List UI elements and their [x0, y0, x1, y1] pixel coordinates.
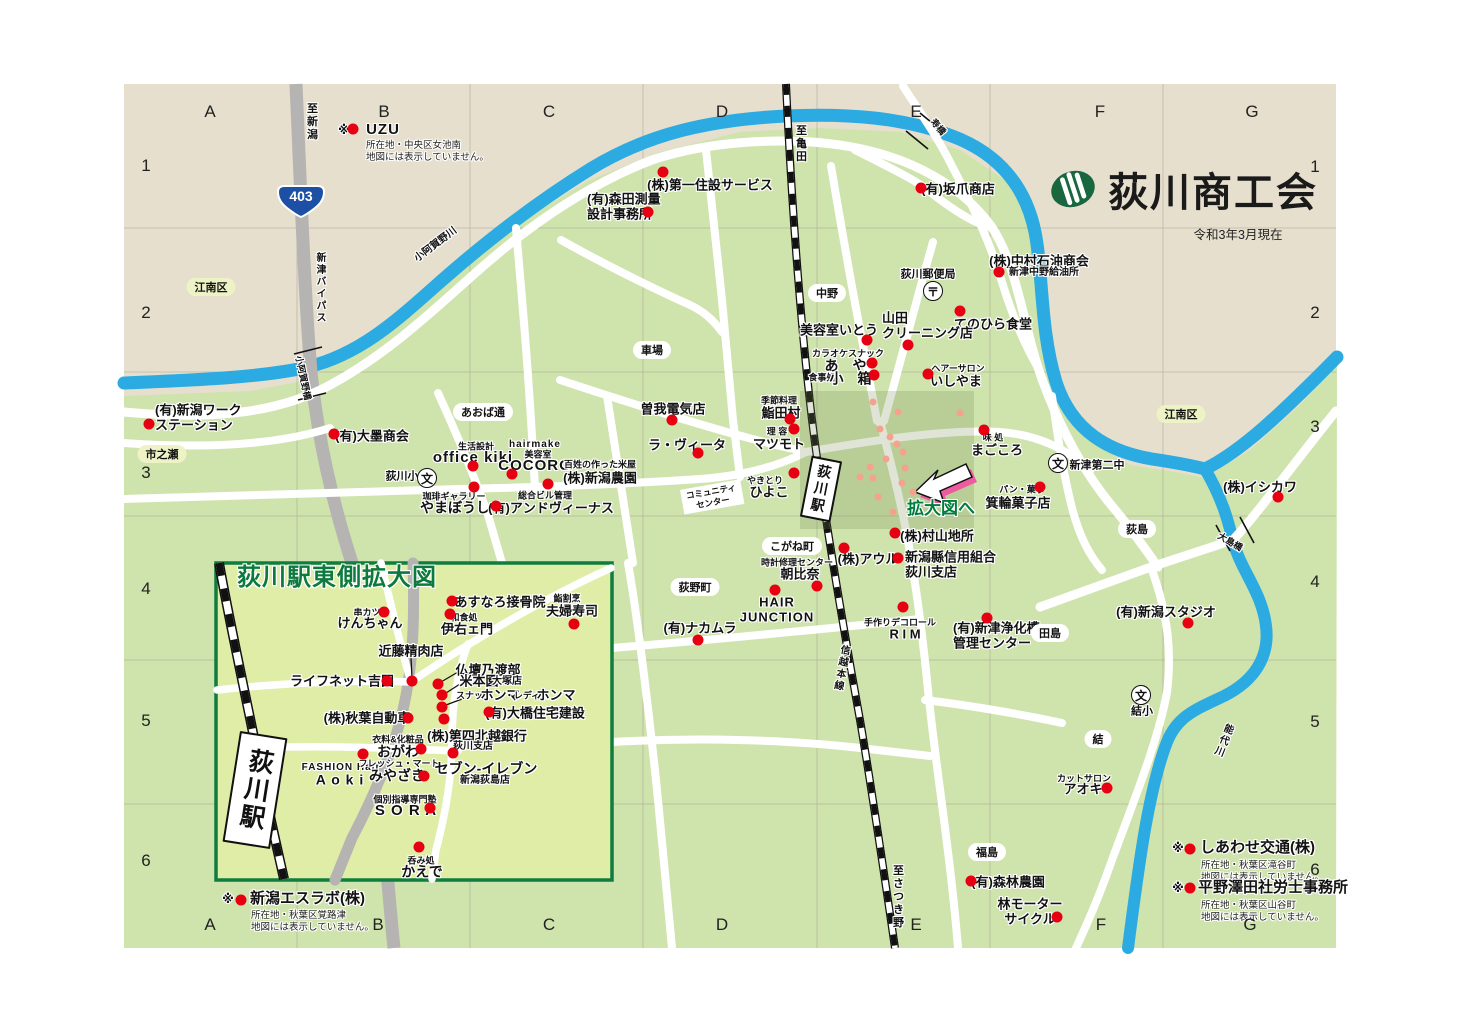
- map-label: (有)新津浄化槽 管理センター: [953, 621, 1040, 652]
- poi-dot-small: [890, 509, 897, 516]
- poi-dot: [982, 613, 993, 624]
- poi-dot: [484, 707, 495, 718]
- poi-dot: [236, 895, 247, 906]
- map-label: かえで: [401, 864, 443, 881]
- map-label: (有)アンドヴィーナス: [488, 500, 614, 515]
- map-label: マツモト: [753, 436, 805, 451]
- poi-dot: [469, 482, 480, 493]
- map-label: (有)森林農園: [971, 874, 1045, 889]
- poi-dot: [439, 714, 450, 725]
- grid-letter: B: [372, 915, 383, 935]
- poi-dot: [447, 596, 458, 607]
- grid-letter: F: [1096, 915, 1106, 935]
- place-bubble: 車場: [633, 341, 671, 359]
- poi-dot: [507, 469, 518, 480]
- map-label: 寿橋: [928, 117, 948, 138]
- poi-dot-small: [895, 409, 902, 416]
- poi-dot: [348, 124, 359, 135]
- poi-dot: [1052, 912, 1063, 923]
- map-label: 平野澤田社労士事務所: [1198, 879, 1348, 897]
- post-office-icon: 〒: [923, 281, 943, 301]
- poi-dot-small: [887, 434, 894, 441]
- poi-dot: [812, 581, 823, 592]
- map-date: 令和3年3月現在: [1048, 224, 1318, 243]
- grid-number: 1: [141, 156, 150, 176]
- poi-dot: [358, 749, 369, 760]
- map-label: 荻川支店: [453, 741, 493, 753]
- place-bubble: 荻島: [1118, 520, 1156, 538]
- poi-dot: [491, 501, 502, 512]
- map-label: (有)新潟ワーク ステーション: [155, 403, 242, 434]
- map-label: しあわせ交通(株): [1200, 839, 1315, 857]
- school-icon: 文: [1131, 685, 1151, 705]
- poi-dot: [994, 267, 1005, 278]
- map-label: まごころ: [971, 442, 1023, 457]
- poi-dot: [433, 679, 444, 690]
- map-label: ライフネット吉田: [290, 673, 394, 688]
- station-sign: 荻川駅: [800, 456, 842, 523]
- poi-dot-small: [900, 449, 907, 456]
- poi-dot: [1185, 883, 1196, 894]
- map-label: (株)イシカワ: [1223, 479, 1297, 494]
- map-label: A o k i: [316, 772, 365, 789]
- map-label: 至亀田: [795, 125, 806, 164]
- enlarge-arrow-label: 拡大図へ: [907, 499, 975, 519]
- grid-letter: A: [204, 102, 215, 122]
- map-label: (有)大橋住宅建設: [485, 705, 585, 720]
- label-uzu: UZU: [366, 121, 400, 139]
- road-to-niigata: 至新潟: [306, 103, 317, 142]
- poi-dot: [543, 479, 554, 490]
- poi-dot: [867, 358, 878, 369]
- noushiro-river: 能代川: [1211, 721, 1234, 758]
- poi-dot-small: [957, 410, 964, 417]
- map-label: ※: [1172, 881, 1184, 895]
- poi-dot: [923, 369, 934, 380]
- map-label: ラ・ヴィータ: [648, 437, 726, 452]
- map-label: (有)坂爪商店: [921, 181, 995, 196]
- poi-dot: [379, 607, 390, 618]
- poi-dot-small: [875, 494, 882, 501]
- grid-number: 2: [1310, 303, 1319, 323]
- chamber-logo-icon: [1048, 166, 1098, 212]
- map-label: ホンマ: [536, 687, 575, 702]
- map-label: 所在地・秋葉区山谷町 地図には表示していません。: [1201, 900, 1324, 925]
- place-bubble: 田島: [1031, 624, 1069, 642]
- map-label: アオキ: [1063, 781, 1102, 796]
- map-label: (株)秋葉自動車: [324, 710, 411, 725]
- map-label: 小阿賀野橋: [293, 355, 313, 401]
- map-label: 新潟エスラボ(株): [250, 890, 365, 908]
- community-center-box: コミュニティ センター: [680, 479, 744, 514]
- map-label: (株)アウル: [838, 551, 899, 566]
- map-label: やまぼうし: [420, 500, 490, 517]
- poi-dot: [1035, 482, 1046, 493]
- poi-dot: [1102, 783, 1113, 794]
- poi-dot: [903, 340, 914, 351]
- poi-dot-small: [877, 426, 884, 433]
- map-label: 荻川小: [386, 471, 419, 484]
- poi-dot: [569, 619, 580, 630]
- grid-number: 6: [141, 851, 150, 871]
- poi-dot: [437, 690, 448, 701]
- poi-dot: [658, 167, 669, 178]
- poi-dot: [955, 306, 966, 317]
- map-label: 近藤精肉店: [378, 643, 443, 658]
- map-label: 結小: [1131, 706, 1153, 719]
- poi-dot-small: [867, 464, 874, 471]
- map-label: ※: [1172, 841, 1184, 855]
- map-label: 所在地・秋葉区覚路津 地図には表示していません。: [251, 910, 374, 935]
- map-label: 大島橋: [1216, 531, 1245, 554]
- grid-letter: E: [910, 915, 921, 935]
- poi-dot: [448, 748, 459, 759]
- map-label: (株)新潟農園: [563, 470, 637, 485]
- poi-dot: [890, 528, 901, 539]
- poi-dot: [468, 461, 479, 472]
- poi-dot: [407, 676, 418, 687]
- school-icon: 文: [1048, 453, 1068, 473]
- grid-number: 4: [141, 579, 150, 599]
- poi-dot-small: [894, 441, 901, 448]
- poi-dot: [643, 207, 654, 218]
- grid-number: 6: [1310, 860, 1319, 880]
- map-label: 百姓の作った米屋: [564, 460, 636, 471]
- poi-dot: [893, 553, 904, 564]
- grid-number: 2: [141, 303, 150, 323]
- map-label: 至さつき野: [892, 865, 903, 930]
- map-label: (株)村山地所: [900, 528, 974, 543]
- grid-number: 3: [141, 463, 150, 483]
- poi-dot: [789, 424, 800, 435]
- poi-dot-small: [883, 456, 890, 463]
- grid-letter: B: [378, 102, 389, 122]
- place-bubble: あおば通: [453, 403, 513, 421]
- poi-dot: [425, 803, 436, 814]
- grid-letter: D: [716, 102, 728, 122]
- place-bubble: 福島: [968, 843, 1006, 861]
- map-label: (有)大墨商会: [335, 428, 409, 443]
- shinetsu-line: 信越本線: [831, 643, 849, 692]
- grid-letter: C: [543, 915, 555, 935]
- place-bubble: 結: [1085, 730, 1112, 748]
- map-label: 箕輪菓子店: [985, 495, 1050, 510]
- map-label: 伊右ェ門: [441, 621, 493, 636]
- poi-dot: [966, 876, 977, 887]
- map-label: 新津第二中: [1070, 460, 1125, 473]
- place-bubble: 荻野町: [671, 578, 720, 596]
- niitsu-bypass: 新津バイパス: [314, 252, 324, 324]
- map-label: HAIR JUNCTION: [740, 595, 814, 626]
- place-bubble: 中野: [808, 284, 846, 302]
- inset-title: 荻川駅東側拡大図: [237, 564, 437, 592]
- map-label: けんちゃん: [337, 615, 402, 630]
- grid-letter: A: [204, 915, 215, 935]
- grid-number: 5: [1310, 712, 1319, 732]
- poi-dot-small: [902, 465, 909, 472]
- station-sign: 荻川駅: [223, 731, 288, 849]
- place-bubble: 市之瀬: [138, 445, 187, 463]
- poi-dot: [839, 543, 850, 554]
- poi-dot: [414, 842, 425, 853]
- poi-dot-small: [899, 480, 906, 487]
- grid-letter: G: [1243, 915, 1256, 935]
- page-title: 荻川商工会: [1108, 160, 1318, 218]
- labels-layer: ※UZU所在地・中央区女池南 地図には表示していません。(株)第一住設サービス(…: [0, 0, 1460, 1032]
- poi-dot: [382, 676, 393, 687]
- poi-dot: [667, 415, 678, 426]
- map-label: いしやま: [930, 373, 982, 388]
- place-bubble: 江南区: [187, 278, 236, 296]
- place-bubble: こがね町: [762, 537, 822, 555]
- map-label: あすなろ接骨院: [454, 594, 545, 609]
- poi-dot-small: [857, 474, 864, 481]
- poi-dot: [419, 771, 430, 782]
- map-label: 所在地・中央区女池南 地図には表示していません。: [366, 140, 489, 165]
- poi-dot: [770, 585, 781, 596]
- poi-dot: [403, 713, 414, 724]
- koagano-river: 小阿賀野川: [412, 225, 459, 265]
- poi-dot: [916, 183, 927, 194]
- map-label: (株)第一住設サービス: [647, 177, 773, 192]
- poi-dot: [1183, 618, 1194, 629]
- poi-dot: [693, 635, 704, 646]
- map-label: ※: [222, 892, 234, 906]
- poi-dot-small: [870, 475, 877, 482]
- poi-dot: [437, 702, 448, 713]
- map-label: 夫婦寿司: [546, 603, 598, 618]
- map-label: ひよこ: [749, 484, 788, 499]
- title-block: 荻川商工会 令和3年3月現在: [1048, 160, 1318, 243]
- grid-number: 4: [1310, 572, 1319, 592]
- map-label: (有)新潟スタジオ: [1116, 604, 1216, 619]
- grid-letter: C: [543, 102, 555, 122]
- poi-dot: [1273, 492, 1284, 503]
- poi-dot: [979, 425, 990, 436]
- grid-letter: E: [910, 102, 921, 122]
- map-label: 新津中野給油所: [1009, 267, 1079, 279]
- poi-dot: [693, 448, 704, 459]
- poi-dot: [416, 744, 427, 755]
- poi-dot: [329, 429, 340, 440]
- poi-dot: [869, 370, 880, 381]
- poi-dot-small: [910, 489, 917, 496]
- map-label: 朝比奈: [780, 566, 819, 581]
- map-page: 403 ※UZU所在地・中央区女池南 地図には表示していません。(株)第: [0, 0, 1460, 1032]
- poi-dot: [862, 335, 873, 346]
- grid-number: 5: [141, 711, 150, 731]
- poi-dot: [144, 419, 155, 430]
- place-bubble: 江南区: [1157, 405, 1206, 423]
- poi-dot: [898, 602, 909, 613]
- grid-number: 3: [1310, 417, 1319, 437]
- map-label: 荻川郵便局: [901, 269, 956, 282]
- map-label: みやざき: [369, 768, 425, 785]
- poi-dot: [1185, 844, 1196, 855]
- school-icon: 文: [417, 468, 437, 488]
- grid-letter: F: [1095, 102, 1105, 122]
- map-label: (有)ナカムラ: [663, 620, 736, 635]
- map-label: 大塚店: [492, 676, 522, 688]
- grid-letter: D: [716, 915, 728, 935]
- poi-dot: [789, 468, 800, 479]
- map-label: 新潟縣信用組合 荻川支店: [905, 550, 996, 581]
- map-label: R I M: [889, 626, 920, 641]
- map-label: 新潟荻島店: [460, 775, 510, 787]
- grid-letter: G: [1245, 102, 1258, 122]
- poi-dot: [445, 609, 456, 620]
- poi-dot-small: [870, 399, 877, 406]
